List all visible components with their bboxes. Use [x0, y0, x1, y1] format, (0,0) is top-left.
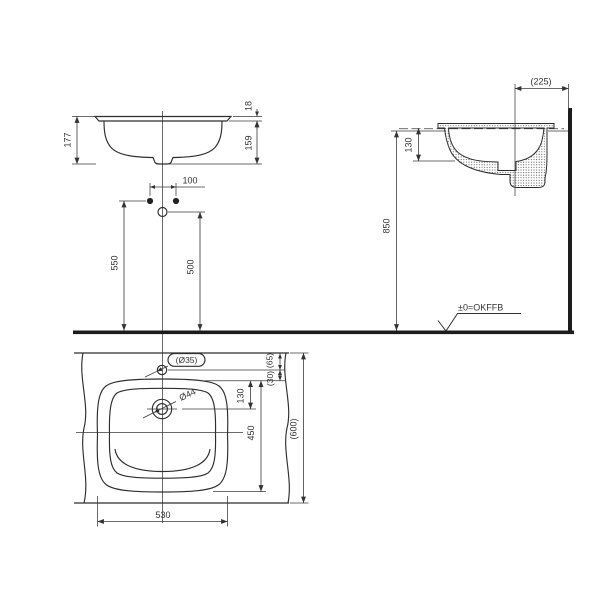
dim-edge-to-faucet: (65): [265, 353, 281, 370]
dim-label-177: 177: [63, 132, 73, 147]
dim-label-65: (65): [265, 353, 275, 368]
drawing-sheet: 177 18 159 100 550: [0, 0, 600, 600]
dim-label-530: 530: [155, 510, 170, 520]
dim-label-18: 18: [244, 101, 254, 111]
dim-label-550: 550: [110, 255, 120, 270]
dim-faucet-to-rim: (30): [265, 370, 280, 386]
supply-hole-right: [173, 198, 179, 204]
break-line-left: [82, 353, 86, 503]
leader-tail: [143, 413, 154, 419]
dim-supply-height: 550: [110, 201, 147, 331]
dim-label-30: (30): [265, 371, 275, 386]
floor-level-label: ±0=OKFFB: [458, 303, 503, 313]
dim-label-130-plan: 130: [236, 388, 246, 403]
floor-line: [73, 331, 574, 335]
plan-view: (Ø35) Ø44 (65) (30) 130: [74, 353, 309, 527]
dim-counter-height: 850: [382, 131, 397, 331]
dim-counter-depth: (600): [289, 353, 309, 503]
dim-label-850: 850: [382, 218, 392, 233]
basin-section-profile: [438, 124, 554, 188]
leader-tail: [145, 371, 157, 377]
dim-label-100: 100: [182, 176, 197, 186]
dim-label-225: (225): [530, 77, 551, 87]
dim-label-faucet-dia: (Ø35): [176, 355, 198, 365]
basin-bowl-front: [104, 121, 222, 164]
dim-supply-spacing: 100: [150, 176, 205, 197]
dim-drain-height: 500: [168, 212, 205, 331]
dim-label-500: 500: [186, 259, 196, 274]
supply-hole-left: [147, 198, 153, 204]
wall-line: [568, 108, 572, 332]
dim-drain-to-wall: (225): [515, 77, 569, 89]
level-datum-icon: [438, 314, 521, 332]
dim-total-height: 177: [63, 117, 97, 165]
dim-label-130-side: 130: [404, 137, 414, 152]
floor-level-datum: ±0=OKFFB: [438, 303, 521, 332]
faucet-hole-callout: (Ø35): [145, 354, 205, 378]
basin-rim-front: [95, 117, 231, 122]
dim-label-450: 450: [246, 425, 256, 440]
technical-drawing: 177 18 159 100 550: [0, 0, 600, 600]
faucet-hole-circle: [157, 365, 166, 374]
side-view: (225) 130 850 ±0=OKFFB: [382, 77, 573, 333]
dim-label-159: 159: [244, 135, 254, 150]
dim-label-600: (600): [289, 418, 299, 439]
